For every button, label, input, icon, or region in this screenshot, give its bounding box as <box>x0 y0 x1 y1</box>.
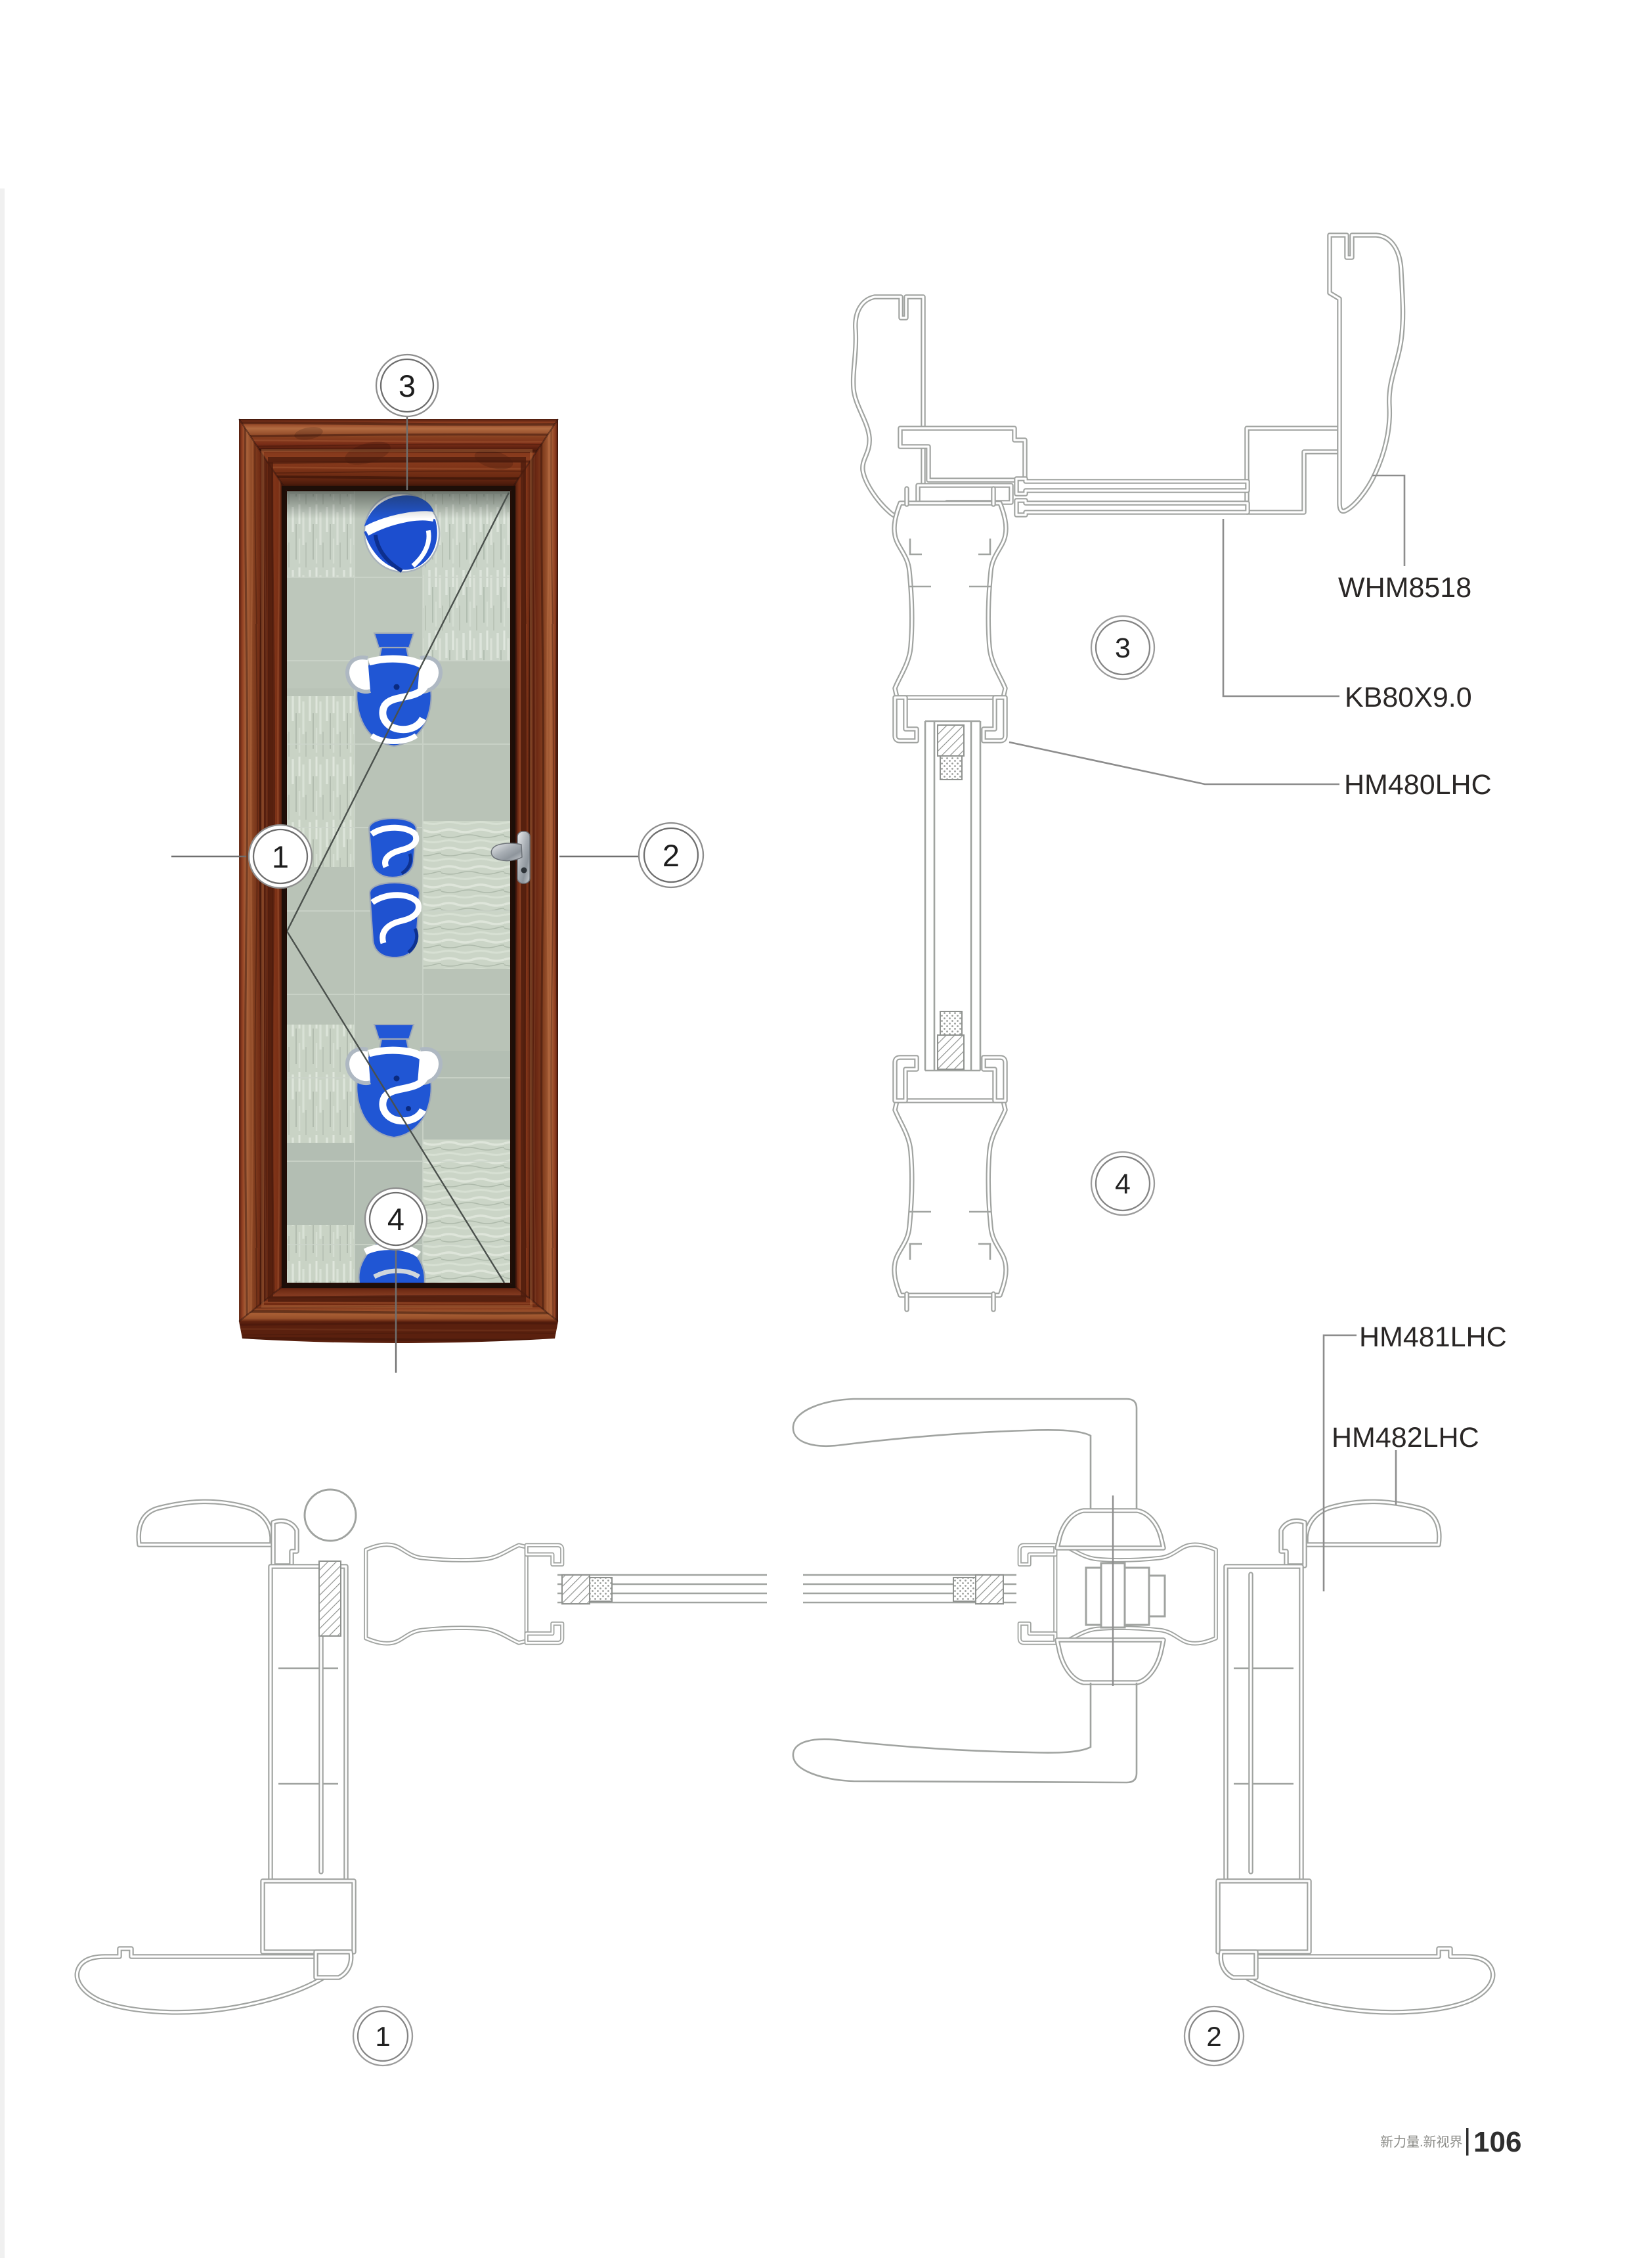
svg-text:3: 3 <box>399 368 416 403</box>
svg-text:1: 1 <box>272 839 289 874</box>
svg-text:2: 2 <box>1206 2021 1221 2052</box>
svg-text:3: 3 <box>1115 632 1131 664</box>
svg-text:新力量.新视界: 新力量.新视界 <box>1380 2135 1463 2150</box>
svg-text:4: 4 <box>387 1202 404 1237</box>
svg-text:2: 2 <box>663 838 680 873</box>
svg-text:HM482LHC: HM482LHC <box>1332 1422 1479 1453</box>
svg-text:4: 4 <box>1115 1168 1131 1200</box>
svg-text:WHM8518: WHM8518 <box>1338 572 1471 604</box>
svg-text:1: 1 <box>375 2021 390 2052</box>
svg-text:HM480LHC: HM480LHC <box>1344 769 1492 801</box>
svg-text:106: 106 <box>1473 2126 1521 2158</box>
svg-text:KB80X9.0: KB80X9.0 <box>1345 682 1472 713</box>
svg-text:HM481LHC: HM481LHC <box>1359 1321 1507 1353</box>
